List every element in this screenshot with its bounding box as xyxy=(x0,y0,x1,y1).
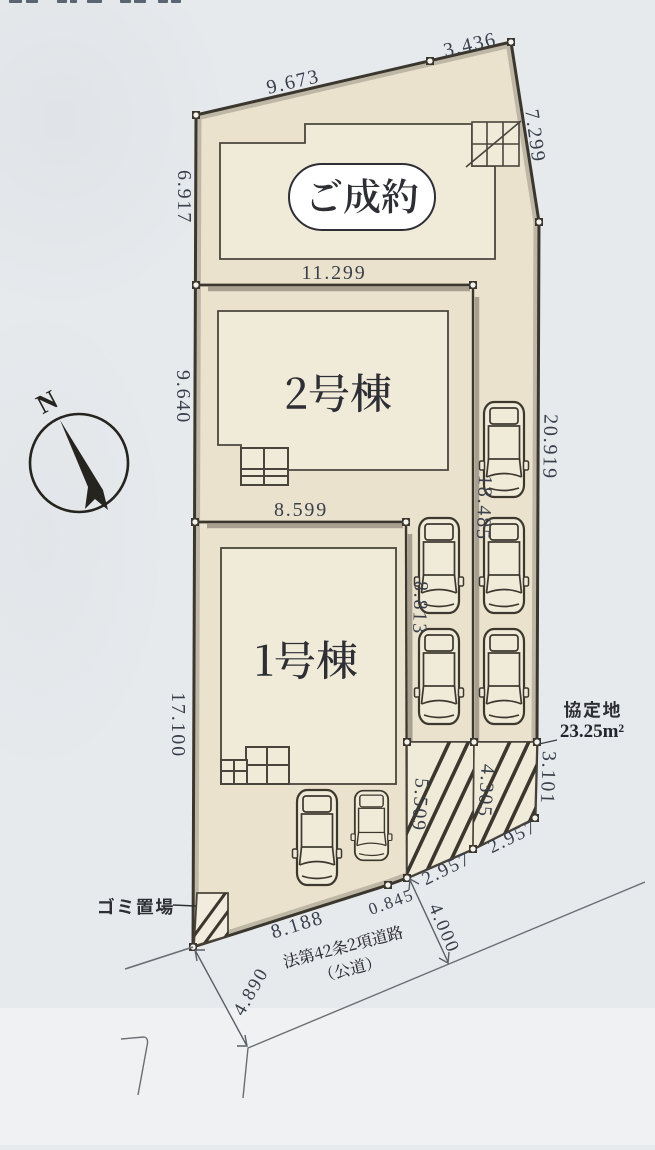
svg-text:20.919: 20.919 xyxy=(538,414,561,480)
svg-text:5.509: 5.509 xyxy=(407,777,433,832)
svg-text:8.813: 8.813 xyxy=(408,581,432,636)
svg-text:9.640: 9.640 xyxy=(172,370,194,424)
svg-text:6.917: 6.917 xyxy=(173,170,195,224)
svg-text:11.299: 11.299 xyxy=(301,262,366,284)
svg-text:23.25m²: 23.25m² xyxy=(560,721,625,742)
svg-text:17.100: 17.100 xyxy=(167,692,189,758)
svg-text:4.305: 4.305 xyxy=(473,763,499,818)
svg-text:18.485: 18.485 xyxy=(472,475,496,542)
svg-text:8.599: 8.599 xyxy=(274,499,328,521)
svg-text:3.101: 3.101 xyxy=(536,751,560,806)
